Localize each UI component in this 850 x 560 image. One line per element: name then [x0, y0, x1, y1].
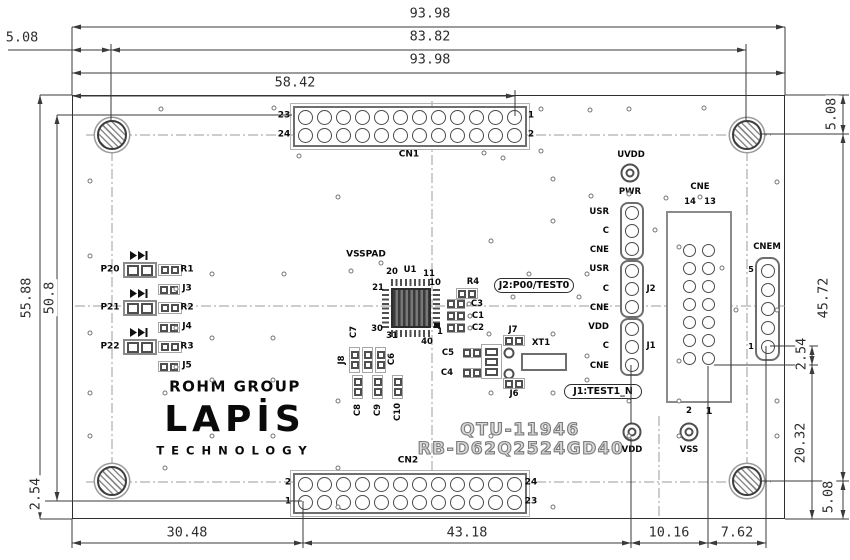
- c9-component: [372, 375, 383, 399]
- pin-row: [625, 264, 639, 278]
- via: [487, 332, 492, 337]
- pin-hole: [488, 128, 503, 143]
- dim-top-left-hole-offset: 5.08: [4, 31, 41, 45]
- j6-jumper: [503, 378, 525, 389]
- pin-hole: [702, 244, 715, 257]
- via: [297, 154, 302, 159]
- u1-pin21-label: 21: [372, 284, 384, 293]
- dimension-arrow: [708, 541, 717, 546]
- board-id-line2: RB-D62Q2524GD40: [418, 439, 625, 459]
- vdd-pad: [623, 423, 642, 442]
- via: [379, 261, 384, 266]
- via: [467, 302, 472, 307]
- pin-hole: [507, 128, 522, 143]
- pin-row: [625, 282, 639, 296]
- c1-component: [447, 311, 465, 321]
- dimension-arrow: [776, 25, 785, 30]
- via: [174, 287, 179, 292]
- pwr-row-label: CNE: [590, 246, 609, 255]
- pin-row: [625, 300, 639, 314]
- pin-hole: [355, 110, 370, 125]
- cn1-pin1-label: 1: [528, 112, 534, 121]
- j6-label: J6: [509, 390, 518, 399]
- u1-pin20-label: 20: [386, 268, 398, 277]
- dim-bottom-vdd-cne: 10.16: [647, 526, 692, 540]
- via: [489, 239, 494, 244]
- pin-hole: [702, 352, 715, 365]
- pin-hole: [431, 477, 446, 492]
- pwr-row-label: CNE: [590, 304, 609, 313]
- u1-refdes: U1: [404, 266, 417, 275]
- jumper-component: [362, 347, 373, 373]
- pin-row: [683, 352, 715, 365]
- pin-row: [298, 495, 522, 510]
- j4-label: J4: [182, 323, 192, 332]
- via: [702, 106, 707, 111]
- board-id-line1: QTU-11946: [460, 420, 580, 440]
- dimension-arrow: [810, 510, 815, 519]
- pin-hole: [625, 340, 639, 354]
- pin-hole: [393, 110, 408, 125]
- c7-label: C7: [350, 326, 359, 338]
- cn2-pin24-label: 24: [525, 479, 538, 488]
- pin-hole: [683, 316, 696, 329]
- pin-row: [625, 322, 639, 336]
- vsspad-label: VSSPAD: [346, 251, 386, 260]
- via: [775, 180, 780, 185]
- r1-label: R1: [180, 266, 193, 275]
- pin-row: [683, 280, 715, 293]
- pin-hole: [469, 495, 484, 510]
- pin-row: [683, 316, 715, 329]
- via: [551, 219, 556, 224]
- pin-hole: [431, 495, 446, 510]
- dimension-arrow: [38, 95, 43, 104]
- via: [677, 359, 682, 364]
- c1-label: C1: [472, 312, 484, 321]
- pin-hole: [450, 110, 465, 125]
- via: [677, 399, 682, 404]
- pin-hole: [702, 262, 715, 275]
- via: [88, 434, 93, 439]
- dimension-arrow: [841, 472, 846, 481]
- pin-hole: [761, 283, 775, 297]
- dim-right-hole-span: 45.72: [817, 276, 831, 321]
- via: [551, 177, 556, 182]
- dimension-arrow: [72, 48, 81, 53]
- j5-label: J5: [182, 362, 192, 371]
- c8-label: C8: [354, 404, 363, 416]
- via: [775, 434, 780, 439]
- via: [527, 272, 532, 277]
- pin-hole: [683, 280, 696, 293]
- pin-row: [761, 283, 775, 297]
- mounting-hole-bottom-left: [97, 466, 127, 496]
- dimension-arrow: [841, 510, 846, 519]
- cn1-refdes: CN1: [399, 151, 419, 160]
- via: [159, 107, 164, 112]
- pin-hole: [374, 477, 389, 492]
- pin-row: [625, 206, 639, 220]
- xt1-label: XT1: [532, 339, 550, 348]
- u1-pin30-label: 30: [371, 325, 383, 334]
- via: [677, 434, 682, 439]
- via: [734, 308, 739, 313]
- vss-pad: [680, 423, 699, 442]
- pin-hole: [507, 477, 522, 492]
- dim-top-hole-span: 83.82: [408, 30, 453, 44]
- via: [210, 378, 215, 383]
- via: [336, 195, 341, 200]
- via: [489, 391, 494, 396]
- pwr-row-label: C: [603, 342, 609, 351]
- c2-component: [447, 323, 465, 333]
- r2-component: [158, 302, 182, 314]
- pin-row: [298, 128, 522, 143]
- dim-right-top-hole-offset: 5.08: [825, 96, 839, 133]
- led-arrows-icon: [129, 288, 149, 299]
- c3-label: C3: [471, 300, 483, 309]
- via: [577, 295, 582, 300]
- dim-bottom-cn2-offset: 30.48: [165, 526, 210, 540]
- uvdd-label: UVDD: [617, 151, 645, 160]
- pin-row: [761, 321, 775, 335]
- pin-hole: [761, 340, 775, 354]
- via: [551, 391, 556, 396]
- pin-hole: [412, 495, 427, 510]
- dim-left-board-height: 55.88: [20, 276, 34, 321]
- pwr-row-label: VDD: [588, 323, 609, 332]
- via: [627, 192, 632, 197]
- via: [271, 434, 276, 439]
- pin-hole: [625, 358, 639, 372]
- pin-hole: [450, 477, 465, 492]
- vdd-label: VDD: [622, 446, 643, 455]
- via: [163, 466, 168, 471]
- pwr-header-group2-j2: [620, 260, 644, 318]
- r3-component: [158, 341, 182, 353]
- pin-hole: [374, 110, 389, 125]
- dimension-arrow: [776, 71, 785, 76]
- p20-jumper: [123, 262, 157, 278]
- u1-pin10-label: 10: [429, 279, 441, 288]
- pin-hole: [683, 244, 696, 257]
- via: [336, 466, 341, 471]
- via: [272, 106, 277, 111]
- c9-label: C9: [374, 404, 383, 416]
- dimension-arrow: [841, 134, 846, 143]
- j8-label: J8: [338, 355, 347, 364]
- led-arrows-icon: [129, 250, 149, 261]
- pin-hole: [625, 206, 639, 220]
- j1-signal-callout: J1:TEST1_N: [564, 384, 642, 399]
- pin-row: [761, 264, 775, 278]
- dim-bottom-cne-cnem: 7.62: [719, 526, 756, 540]
- cne-refdes: CNE: [690, 183, 709, 192]
- c4-component: [463, 368, 481, 378]
- via: [589, 194, 594, 199]
- via: [88, 391, 93, 396]
- pin-row: [683, 298, 715, 311]
- cne-pin13-label: 13: [704, 198, 716, 207]
- via: [585, 354, 590, 359]
- cn1-pin24-label: 24: [278, 131, 291, 140]
- dimension-arrow: [72, 25, 81, 30]
- dimension-arrow: [810, 365, 815, 374]
- pin-hole: [625, 224, 639, 238]
- dimension-arrow: [102, 48, 111, 53]
- dimension-arrow: [55, 115, 60, 124]
- r3-label: R3: [180, 343, 193, 352]
- pin-hole: [469, 110, 484, 125]
- rohm-group-logo: ROHM GROUP: [169, 380, 301, 395]
- dim-top-cn1-pin1: 58.42: [273, 76, 318, 90]
- dimension-arrow: [737, 48, 746, 53]
- pcb-board-outline: 23 24 1 2 CN1 2 1 24 23 CN2 P20 P21 P22 …: [72, 95, 785, 519]
- via: [282, 272, 287, 277]
- pin-hole: [702, 280, 715, 293]
- pin-hole: [317, 110, 332, 125]
- via: [88, 331, 93, 336]
- dimension-arrow: [699, 541, 708, 546]
- dimension-arrow: [841, 481, 846, 490]
- via: [627, 107, 632, 112]
- via: [627, 434, 632, 439]
- pwr-header-group3-j1: [620, 318, 644, 376]
- via: [539, 149, 544, 154]
- via: [720, 266, 725, 271]
- pin-hole: [683, 352, 696, 365]
- pin-hole: [488, 495, 503, 510]
- pin-hole: [355, 495, 370, 510]
- pin-hole: [355, 128, 370, 143]
- via: [174, 365, 179, 370]
- via: [775, 399, 780, 404]
- pin-hole: [298, 128, 313, 143]
- pin-hole: [298, 495, 313, 510]
- pin-hole: [761, 321, 775, 335]
- pwr-row-label: USR: [589, 265, 609, 274]
- pwr-row-label: USR: [589, 208, 609, 217]
- pin-row: [625, 340, 639, 354]
- pcb-dimension-drawing: 23 24 1 2 CN1 2 1 24 23 CN2 P20 P21 P22 …: [0, 0, 850, 560]
- c10-component: [392, 375, 403, 399]
- pin-row: [761, 340, 775, 354]
- dimension-arrow: [757, 541, 766, 546]
- connector-cne: [666, 211, 732, 403]
- pwr-row-label: CNE: [590, 362, 609, 371]
- pin-hole: [683, 262, 696, 275]
- jumper-component: [349, 347, 360, 373]
- via: [271, 378, 276, 383]
- pin-hole: [336, 110, 351, 125]
- pin-hole: [412, 477, 427, 492]
- dimension-arrow: [111, 48, 120, 53]
- via: [336, 399, 341, 404]
- via: [210, 434, 215, 439]
- mounting-hole-top-right: [732, 120, 762, 150]
- c5-component: [463, 348, 481, 358]
- dimension-arrow: [38, 510, 43, 519]
- via: [539, 107, 544, 112]
- cne-pin14-label: 14: [684, 198, 696, 207]
- pin-hole: [761, 302, 775, 316]
- mounting-hole-top-left: [97, 120, 127, 150]
- pin-hole: [317, 477, 332, 492]
- c10-label: C10: [394, 403, 403, 421]
- pin-hole: [507, 495, 522, 510]
- pin-hole: [298, 110, 313, 125]
- cnem-pin5-label: 5: [748, 266, 754, 274]
- via: [653, 228, 658, 233]
- via: [482, 151, 487, 156]
- u1-pin31-label: 31: [386, 332, 398, 341]
- pin-hole: [393, 128, 408, 143]
- pwr-row-label: C: [603, 285, 609, 294]
- dim-top-board-width-2: 93.98: [408, 53, 453, 67]
- dimension-arrow: [810, 346, 815, 355]
- pin-hole: [683, 334, 696, 347]
- via: [585, 378, 590, 383]
- pin-row: [625, 358, 639, 372]
- pin-hole: [683, 298, 696, 311]
- cn2-pin1-label: 1: [285, 498, 291, 507]
- pin-hole: [702, 316, 715, 329]
- cnem-pin1-label: 1: [748, 343, 754, 351]
- pin-hole: [625, 322, 639, 336]
- r2-label: R2: [180, 304, 193, 313]
- pin-hole: [625, 300, 639, 314]
- via: [551, 332, 556, 337]
- pin-hole: [761, 264, 775, 278]
- dimension-arrow: [72, 71, 81, 76]
- u1-pin40-label: 40: [421, 338, 433, 347]
- pin-row: [683, 244, 715, 257]
- pin-hole: [336, 477, 351, 492]
- pin-hole: [702, 334, 715, 347]
- dimension-arrow: [622, 541, 631, 546]
- pin-row: [298, 110, 522, 125]
- dimension-arrow: [810, 356, 815, 365]
- lapis-technology-label: TECHNOLOGY: [156, 445, 313, 457]
- pin-hole: [625, 282, 639, 296]
- pin-hole: [336, 128, 351, 143]
- pin-hole: [317, 128, 332, 143]
- dimension-arrow: [294, 541, 303, 546]
- r1-component: [158, 264, 182, 276]
- pin-hole: [298, 477, 313, 492]
- pin-hole: [393, 477, 408, 492]
- pin-row: [298, 477, 522, 492]
- cn2-refdes: CN2: [398, 457, 418, 466]
- pin-hole: [317, 495, 332, 510]
- p21-jumper: [123, 300, 157, 316]
- lapis-logo: LAPİS: [164, 402, 306, 438]
- via: [349, 269, 354, 274]
- via: [468, 314, 473, 319]
- p21-label: P21: [100, 304, 119, 313]
- pin-hole: [702, 298, 715, 311]
- pin-hole: [374, 495, 389, 510]
- j3-label: J3: [182, 285, 192, 294]
- dimension-arrow: [303, 541, 312, 546]
- pin-row: [683, 262, 715, 275]
- j7-label: J7: [508, 326, 517, 335]
- dim-right-bottom-hole-offset: 5.08: [822, 479, 836, 516]
- dimension-arrow: [38, 501, 43, 510]
- c8-component: [352, 375, 363, 399]
- vss-label: VSS: [680, 446, 698, 455]
- p22-jumper: [123, 339, 157, 355]
- via: [88, 179, 93, 184]
- via: [677, 245, 682, 250]
- pin-row: [625, 242, 639, 256]
- c6-label: C6: [388, 353, 397, 365]
- c5-label: C5: [442, 349, 454, 358]
- pin-hole: [450, 495, 465, 510]
- via: [336, 505, 341, 510]
- pin-hole: [625, 264, 639, 278]
- via: [585, 272, 590, 277]
- pin-hole: [393, 495, 408, 510]
- cn1-pin23-label: 23: [278, 112, 291, 121]
- three-pad-component: [481, 344, 502, 379]
- pin-row: [683, 334, 715, 347]
- uvdd-pad: [621, 164, 640, 183]
- pin-hole: [412, 110, 427, 125]
- pin-hole: [431, 128, 446, 143]
- connector-cn2: [293, 473, 527, 514]
- via: [588, 108, 593, 113]
- pin-row: [761, 302, 775, 316]
- pin-hole: [507, 110, 522, 125]
- dim-left-bottom-offset: 2.54: [29, 476, 43, 513]
- r4-component: [456, 288, 478, 299]
- pin-hole: [469, 128, 484, 143]
- pin-hole: [450, 128, 465, 143]
- mounting-hole-bottom-right: [732, 466, 762, 496]
- led-arrows-icon: [129, 327, 149, 338]
- j2-refdes: J2: [646, 285, 655, 294]
- cn2-pin2-label: 2: [285, 479, 291, 488]
- dim-bottom-cn2-vdd: 43.18: [445, 526, 490, 540]
- cn2-pin23-label: 23: [525, 498, 538, 507]
- pin-row: [625, 224, 639, 238]
- via: [511, 295, 516, 300]
- c2-label: C2: [472, 324, 484, 333]
- pin-hole: [488, 477, 503, 492]
- pin-hole: [374, 128, 389, 143]
- via: [551, 505, 556, 510]
- via: [271, 336, 276, 341]
- p20-label: P20: [100, 266, 119, 275]
- dim-right-cnem-cne-gap: 2.54: [795, 336, 809, 373]
- pin-hole: [625, 242, 639, 256]
- via: [664, 196, 669, 201]
- jumper-component: [375, 347, 386, 373]
- pin-hole: [355, 477, 370, 492]
- j7-jumper: [503, 335, 525, 346]
- c4-label: C4: [441, 369, 453, 378]
- r4-label: R4: [467, 278, 479, 287]
- xt1-pad: [504, 348, 515, 359]
- c3-component: [447, 299, 465, 309]
- pin-hole: [431, 110, 446, 125]
- dim-top-board-width: 93.98: [408, 7, 453, 21]
- xt1-crystal-body: [521, 353, 567, 371]
- via: [489, 434, 494, 439]
- cne-pin1-label: 1: [706, 407, 713, 417]
